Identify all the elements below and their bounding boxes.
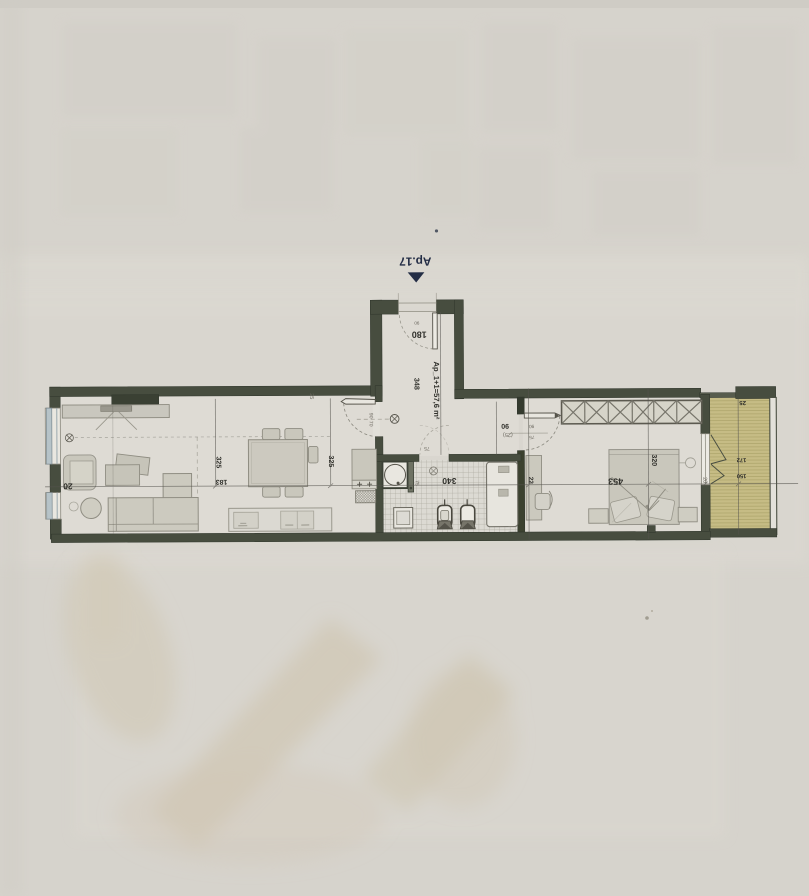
svg-text:453: 453 <box>608 476 623 486</box>
svg-text:172: 172 <box>737 456 747 462</box>
svg-text:150: 150 <box>737 472 747 478</box>
svg-text:75: 75 <box>414 480 420 486</box>
svg-text:90: 90 <box>501 422 509 429</box>
svg-text:Ap_1+1=57,6 m²: Ap_1+1=57,6 m² <box>432 361 441 419</box>
svg-text:(25): (25) <box>503 431 513 437</box>
svg-text:183: 183 <box>216 478 228 485</box>
svg-text:22: 22 <box>527 477 534 485</box>
svg-text:348: 348 <box>412 378 421 390</box>
svg-text:25: 25 <box>739 399 746 405</box>
svg-text:340: 340 <box>442 476 456 486</box>
svg-text:90: 90 <box>414 321 420 326</box>
svg-text:180: 180 <box>412 330 427 340</box>
svg-text:25: 25 <box>308 393 314 399</box>
svg-text:70: 70 <box>368 421 374 427</box>
svg-text:Ap.17: Ap.17 <box>399 254 432 268</box>
svg-text:20: 20 <box>63 481 73 491</box>
svg-text:75: 75 <box>529 434 535 440</box>
svg-text:75: 75 <box>424 445 430 451</box>
svg-text:325: 325 <box>214 457 221 469</box>
svg-text:90: 90 <box>368 413 374 419</box>
svg-text:20: 20 <box>701 477 707 483</box>
svg-text:90: 90 <box>529 423 535 429</box>
svg-text:320: 320 <box>650 454 657 466</box>
svg-text:325: 325 <box>327 456 334 468</box>
